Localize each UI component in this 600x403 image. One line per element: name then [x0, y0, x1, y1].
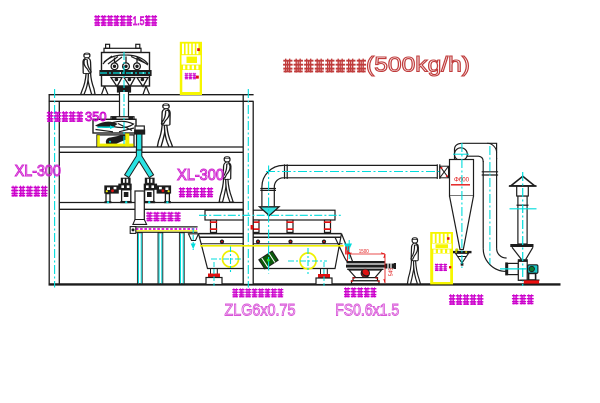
svg-text:ZLG6x0.75: ZLG6x0.75 — [225, 302, 296, 320]
svg-text:350: 350 — [85, 109, 107, 124]
svg-text:1.5: 1.5 — [133, 16, 145, 28]
svg-text:FS0.6x1.5: FS0.6x1.5 — [335, 302, 399, 320]
svg-text:XL-300: XL-300 — [177, 167, 224, 184]
svg-text:XL-300: XL-300 — [15, 163, 61, 180]
svg-text:(500kg/h): (500kg/h) — [366, 53, 470, 77]
svg-text:545: 545 — [388, 268, 394, 277]
svg-text:1500: 1500 — [359, 249, 369, 255]
